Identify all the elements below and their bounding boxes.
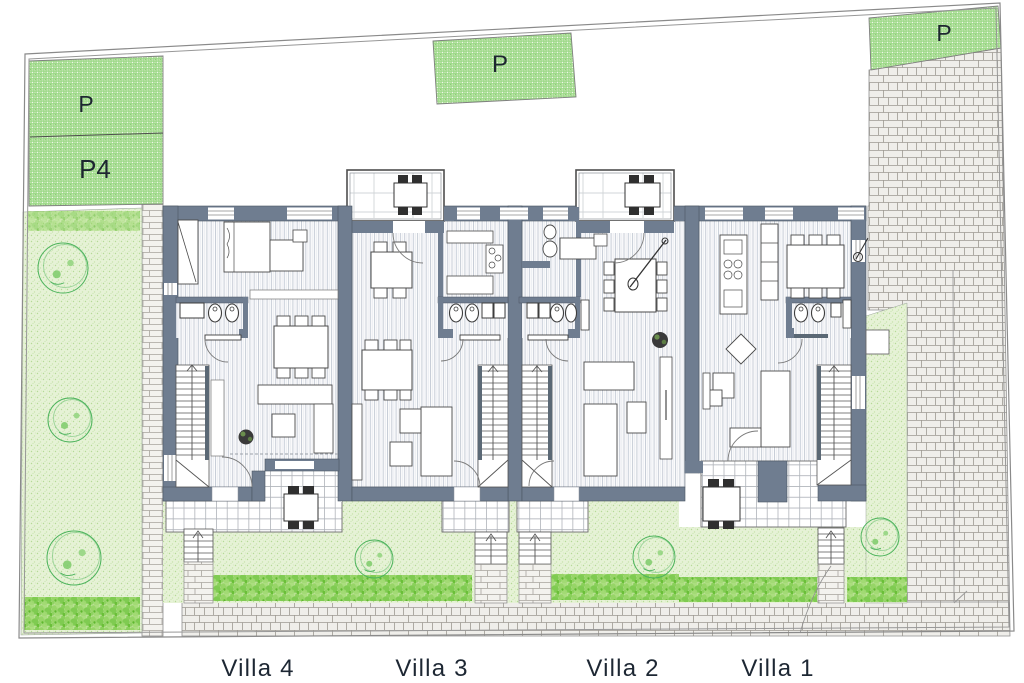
svg-text:P: P: [78, 91, 93, 117]
svg-text:Villa 3: Villa 3: [395, 655, 468, 682]
svg-text:P: P: [936, 20, 951, 46]
svg-text:Villa 1: Villa 1: [741, 655, 814, 682]
svg-text:P4: P4: [79, 154, 111, 184]
svg-text:Villa 4: Villa 4: [221, 655, 294, 682]
svg-text:Villa 2: Villa 2: [586, 655, 659, 682]
svg-text:P: P: [492, 51, 508, 78]
